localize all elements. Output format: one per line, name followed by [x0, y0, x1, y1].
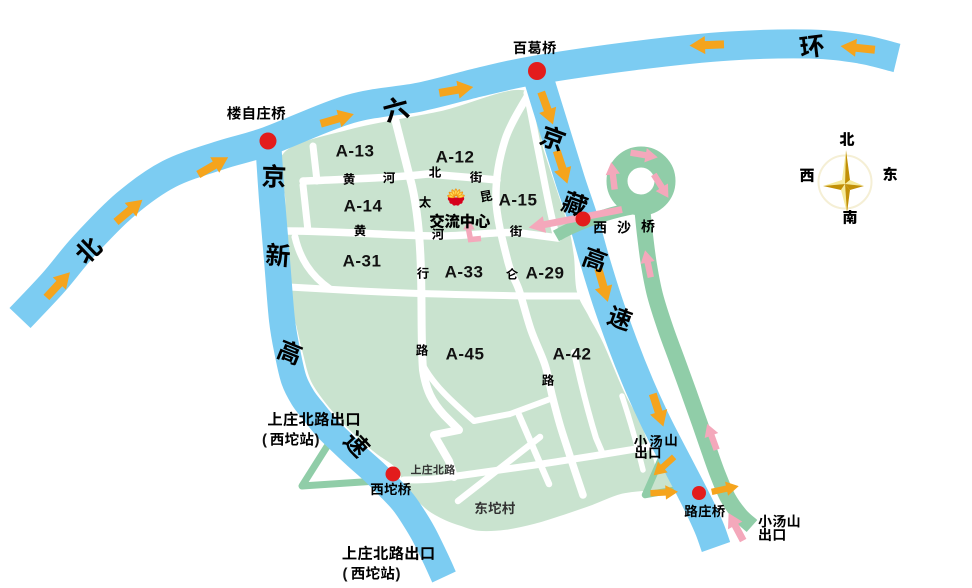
svg-text:(: ( — [343, 566, 348, 583]
svg-text:A-45: A-45 — [446, 345, 485, 364]
svg-text:): ) — [315, 432, 320, 449]
svg-text:A-15: A-15 — [499, 191, 538, 210]
svg-text:A-31: A-31 — [343, 252, 382, 271]
svg-text:A-42: A-42 — [553, 345, 592, 364]
svg-text:A-14: A-14 — [344, 197, 383, 216]
svg-text:A-29: A-29 — [526, 264, 565, 283]
svg-text:A-33: A-33 — [445, 263, 484, 282]
svg-text:): ) — [396, 566, 401, 583]
svg-text:A-13: A-13 — [336, 142, 375, 161]
svg-text:A-12: A-12 — [436, 148, 475, 167]
svg-text:(: ( — [262, 432, 267, 449]
